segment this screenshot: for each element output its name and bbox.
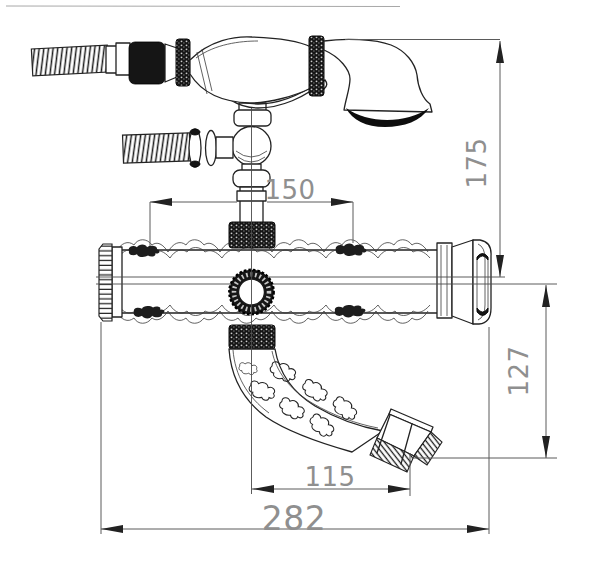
shower-handle: [190, 37, 311, 103]
left-end-cap: [99, 244, 122, 321]
shower-head: [324, 39, 432, 112]
spout-nozzle: [370, 409, 442, 472]
rosette-ornament: [129, 245, 160, 257]
technical-drawing-faucet: 175 150 127 115 282: [0, 0, 600, 566]
rosette-ornament: [336, 244, 367, 256]
knurled-ring-left: [176, 39, 190, 86]
knurled-ring-right: [309, 36, 324, 96]
dimension-label: 127: [504, 345, 534, 396]
knurled-nut: [229, 222, 275, 248]
right-end-cap: [437, 240, 491, 324]
stem-flange: [234, 110, 271, 126]
dimension-label: 175: [462, 137, 492, 188]
shower-grip: [129, 42, 165, 84]
rosette-ornament: [134, 306, 165, 318]
knurled-band: [229, 325, 275, 349]
rosette-ornament: [335, 305, 366, 317]
dimension-label: 150: [264, 175, 315, 205]
dimension-label: 282: [262, 499, 327, 538]
spout-arm: [229, 349, 383, 452]
image-border-artifact: [6, 6, 400, 7]
dimension-label: 115: [304, 462, 355, 492]
drawing-canvas: 175 150 127 115 282: [0, 0, 600, 566]
hand-shower: [31, 36, 432, 127]
grip-cone: [165, 44, 177, 82]
valve-body: [114, 240, 438, 324]
tub-spout: [229, 325, 442, 472]
supply-hose: [123, 133, 191, 163]
shower-hose: [31, 45, 108, 76]
hose-connector: [216, 137, 233, 158]
wall-supply: [123, 129, 233, 167]
